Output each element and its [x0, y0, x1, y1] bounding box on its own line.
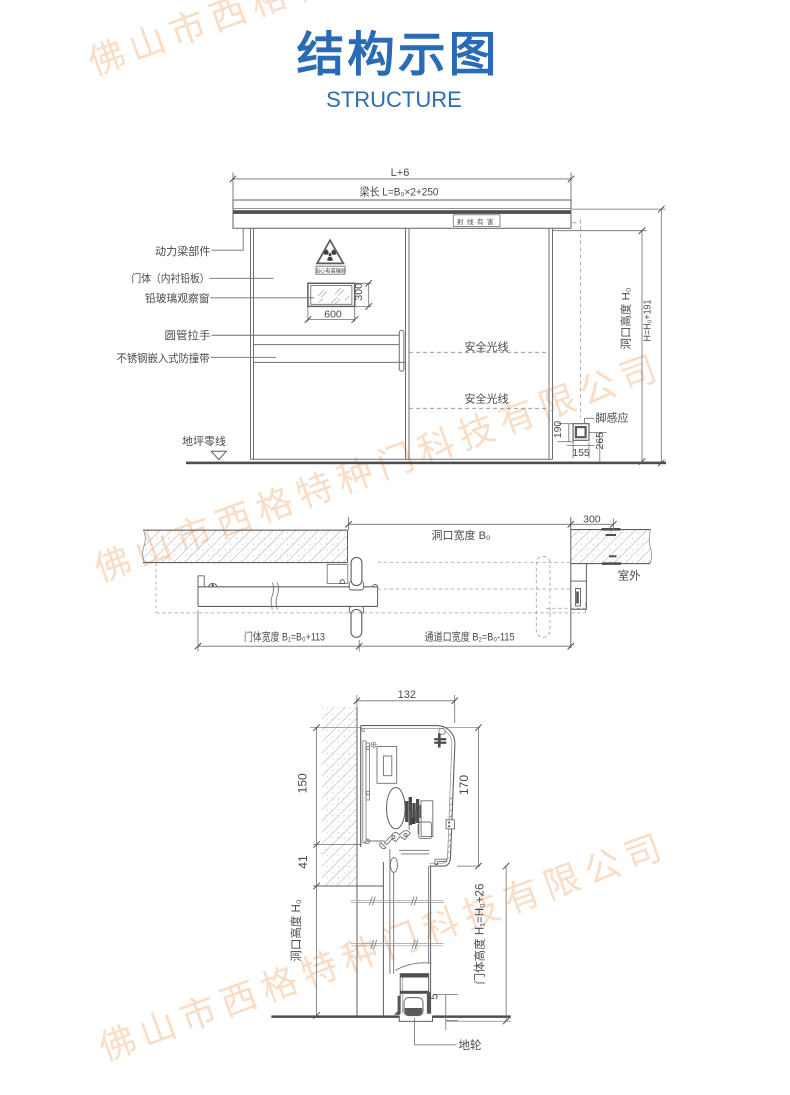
svg-text:L+6: L+6 — [391, 167, 410, 179]
svg-text:安全光线: 安全光线 — [465, 340, 509, 354]
svg-text:动力梁部件: 动力梁部件 — [155, 244, 211, 258]
svg-text:41: 41 — [296, 855, 310, 869]
svg-text:脚感应: 脚感应 — [596, 411, 629, 425]
svg-text:洞口宽度 B₀: 洞口宽度 B₀ — [432, 528, 491, 542]
svg-text:门体（内衬铅板）: 门体（内衬铅板） — [132, 271, 210, 285]
svg-text:190: 190 — [552, 421, 564, 439]
svg-text:地轮: 地轮 — [459, 1038, 482, 1052]
svg-text:梁长 L=B₀×2+250: 梁长 L=B₀×2+250 — [360, 185, 439, 199]
svg-text:结构示图: 结构示图 — [297, 29, 500, 82]
svg-text:H=H₀+191: H=H₀+191 — [643, 299, 654, 341]
svg-text:155: 155 — [572, 447, 590, 459]
svg-text:门体高度 H₁=H₀+26: 门体高度 H₁=H₀+26 — [473, 884, 487, 985]
svg-text:地坪零线: 地坪零线 — [182, 434, 226, 448]
svg-text:600: 600 — [324, 308, 342, 320]
svg-text:170: 170 — [457, 775, 471, 795]
svg-text:射线有害: 射线有害 — [457, 217, 497, 226]
svg-text:300: 300 — [583, 514, 601, 526]
svg-text:铅玻璃观察窗: 铅玻璃观察窗 — [145, 291, 210, 305]
svg-text:5: 5 — [429, 993, 441, 999]
svg-text:洞口高度 H₀: 洞口高度 H₀ — [619, 288, 633, 350]
svg-text:300: 300 — [353, 283, 365, 301]
svg-text:当心电离辐射: 当心电离辐射 — [315, 267, 346, 275]
svg-text:洞口高度 H₀: 洞口高度 H₀ — [289, 899, 303, 961]
svg-text:不锈钢嵌入式防撞带: 不锈钢嵌入式防撞带 — [117, 351, 210, 365]
svg-text:圆管拉手: 圆管拉手 — [165, 328, 211, 342]
svg-text:安全光线: 安全光线 — [465, 392, 509, 406]
svg-text:STRUCTURE: STRUCTURE — [326, 87, 462, 112]
svg-text:265: 265 — [594, 432, 606, 450]
svg-text:132: 132 — [398, 689, 416, 701]
svg-text:室外: 室外 — [618, 569, 641, 583]
svg-text:通道口宽度 B₂=B₀-115: 通道口宽度 B₂=B₀-115 — [425, 629, 515, 643]
svg-text:门体宽度 B₁=B₀+113: 门体宽度 B₁=B₀+113 — [244, 629, 325, 643]
svg-text:150: 150 — [296, 773, 310, 793]
